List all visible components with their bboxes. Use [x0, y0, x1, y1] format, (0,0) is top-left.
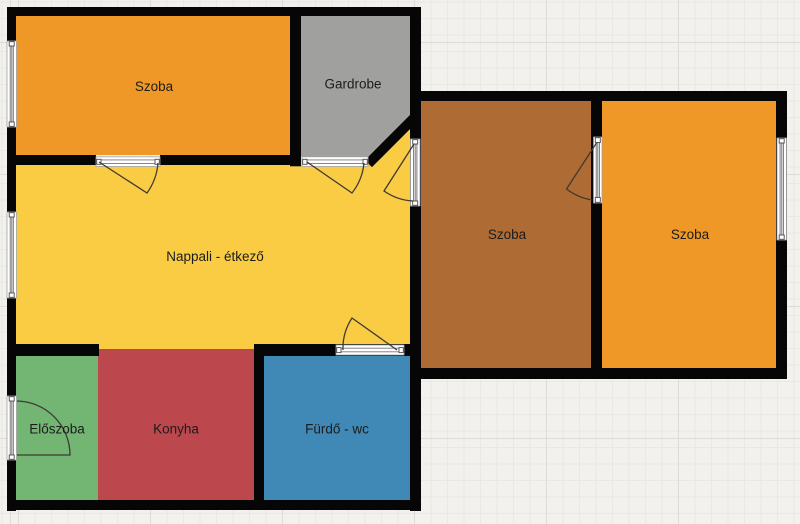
svg-text:Gardrobe: Gardrobe	[324, 77, 381, 92]
svg-text:Szoba: Szoba	[671, 227, 710, 242]
svg-text:Előszoba: Előszoba	[29, 422, 85, 437]
svg-text:Szoba: Szoba	[135, 79, 174, 94]
svg-text:Konyha: Konyha	[153, 422, 199, 437]
svg-text:Fürdő - wc: Fürdő - wc	[305, 422, 369, 437]
svg-text:Nappali - étkező: Nappali - étkező	[166, 249, 264, 264]
svg-text:Szoba: Szoba	[488, 227, 527, 242]
